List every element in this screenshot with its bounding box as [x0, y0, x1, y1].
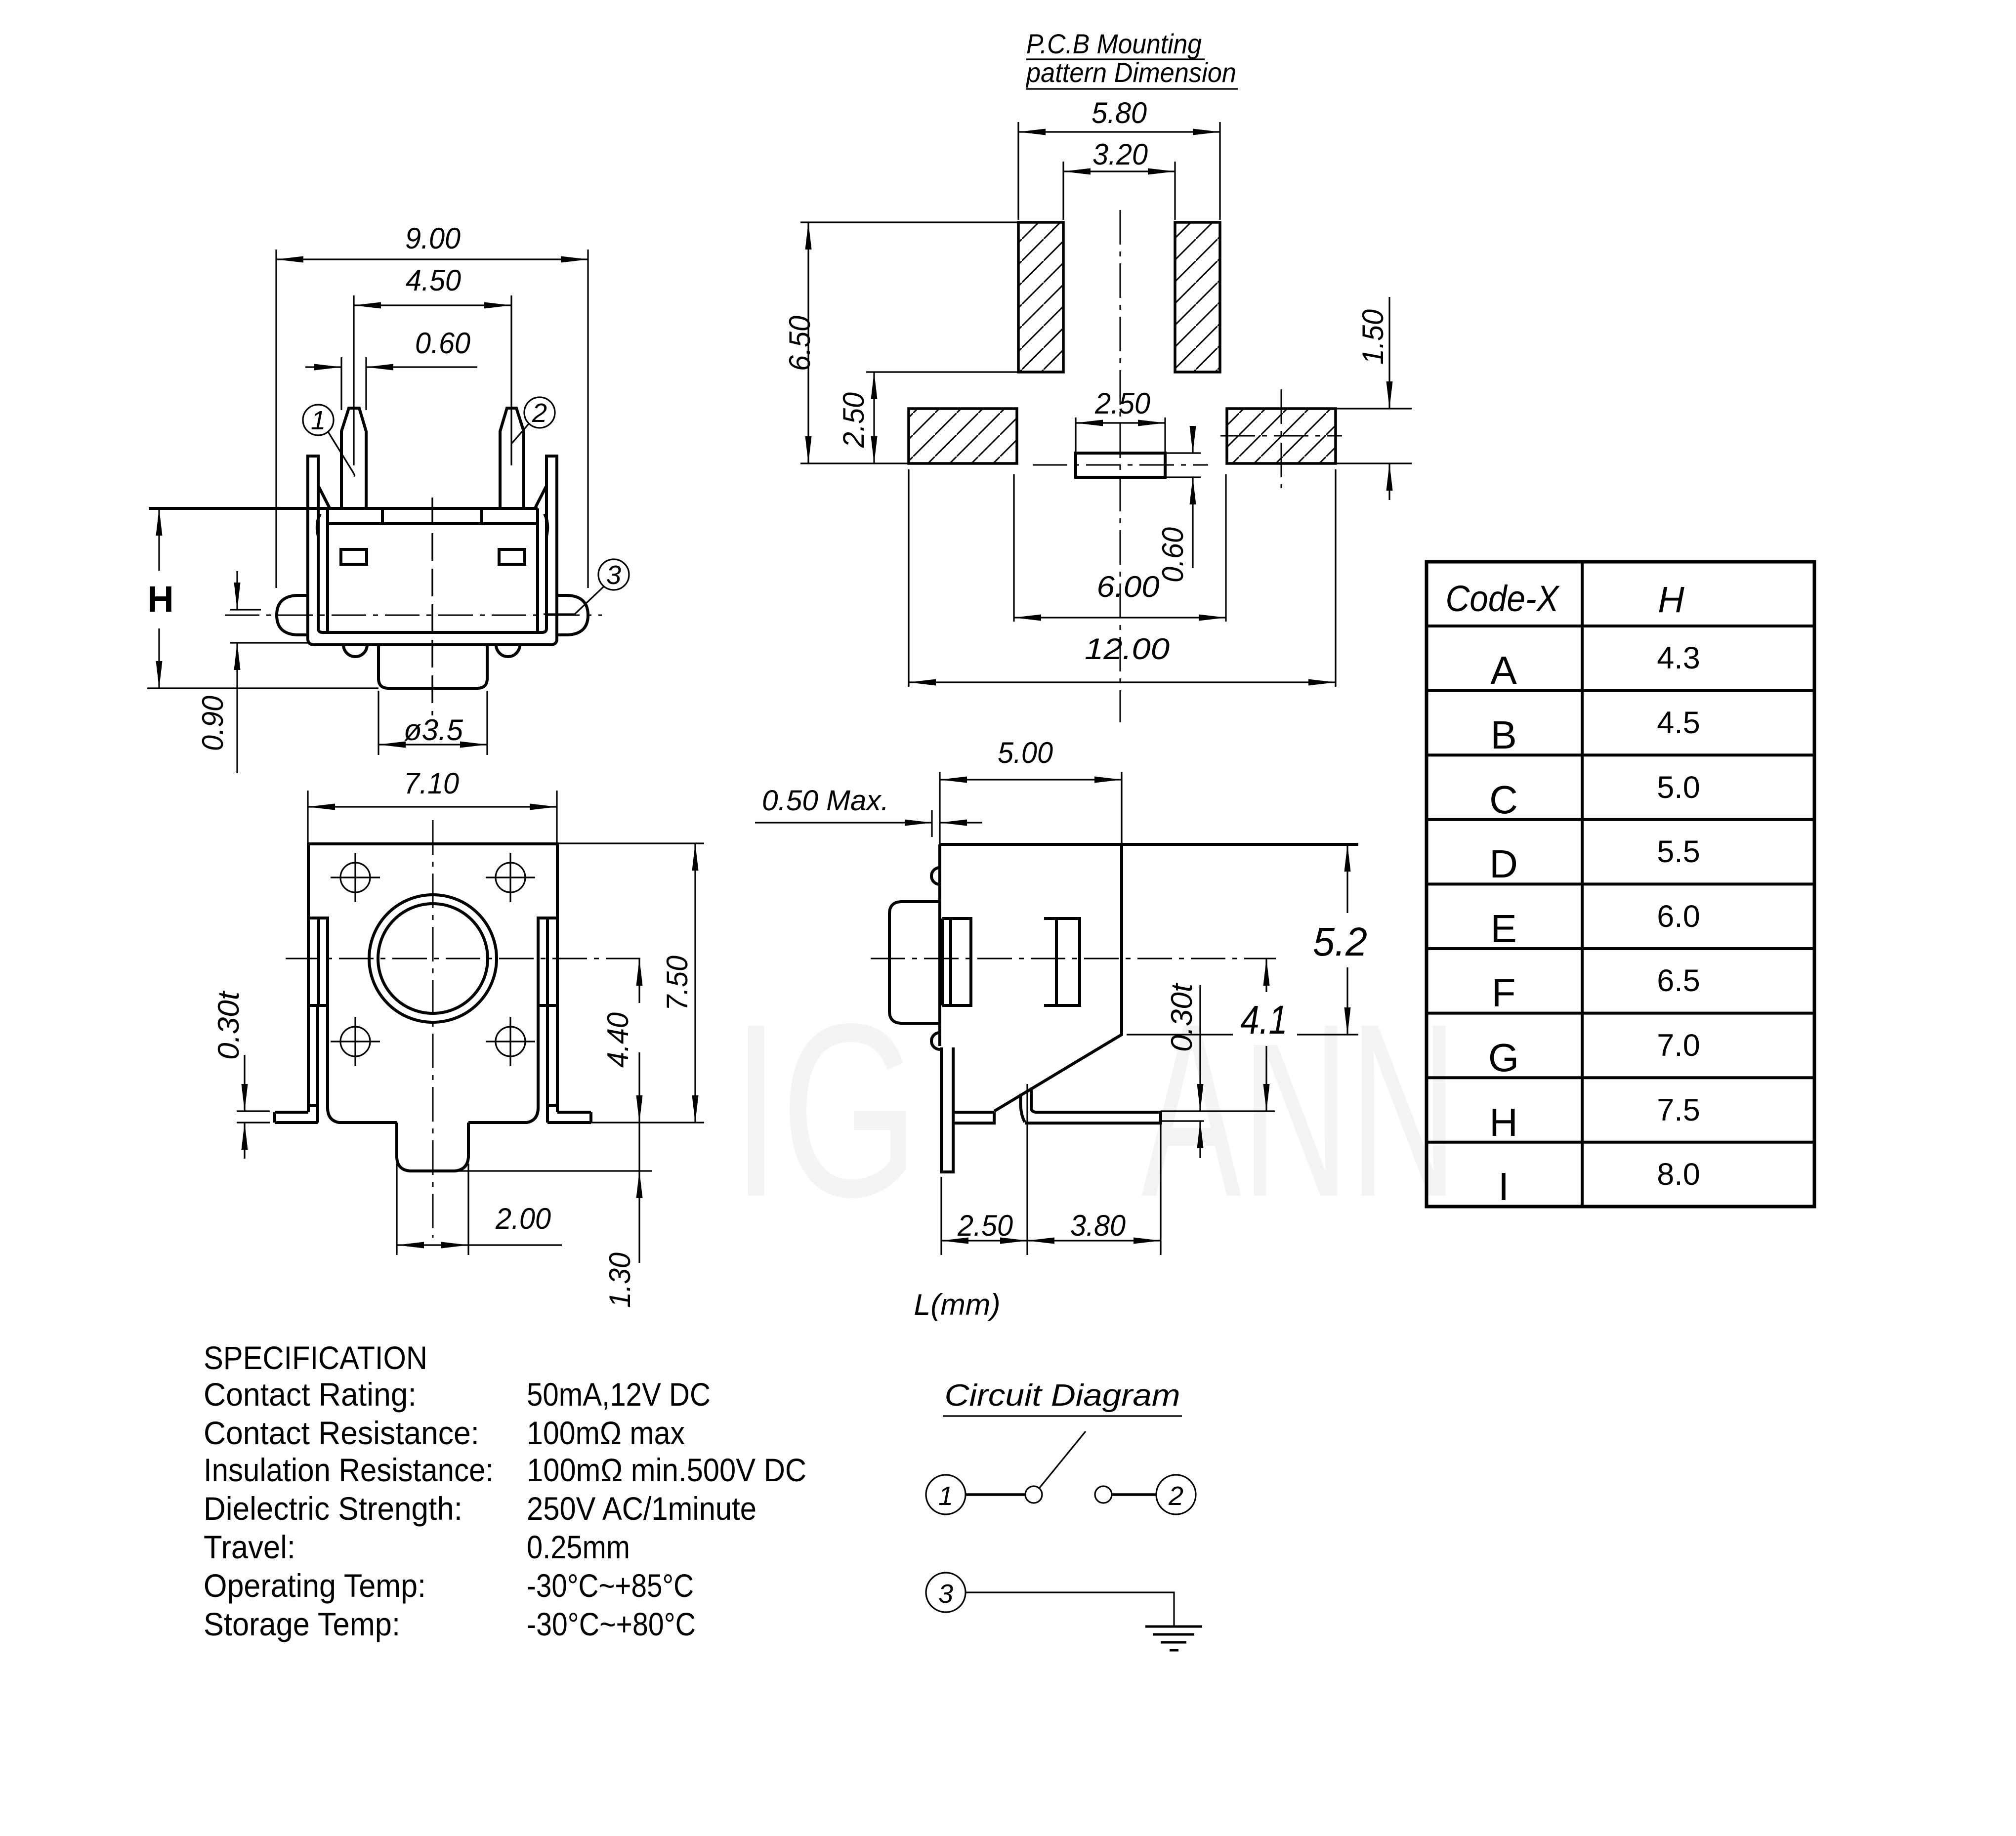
svg-text:2.00: 2.00	[495, 1202, 551, 1235]
svg-text:G: G	[1488, 1036, 1519, 1080]
svg-text:H: H	[1658, 579, 1684, 620]
svg-text:1.30: 1.30	[603, 1252, 636, 1308]
svg-text:F: F	[1492, 971, 1516, 1015]
svg-text:P.C.B Mounting: P.C.B Mounting	[1026, 28, 1202, 59]
svg-text:4.5: 4.5	[1657, 706, 1700, 740]
svg-text:1: 1	[938, 1481, 953, 1511]
svg-text:3: 3	[606, 560, 621, 590]
svg-text:5.5: 5.5	[1657, 835, 1700, 869]
svg-text:4.40: 4.40	[601, 1012, 634, 1068]
svg-text:-30°C~+80°C: -30°C~+80°C	[527, 1606, 696, 1642]
svg-text:100mΩ min.500V DC: 100mΩ min.500V DC	[527, 1452, 806, 1488]
svg-text:E: E	[1490, 907, 1516, 951]
svg-text:12.00: 12.00	[1085, 632, 1170, 666]
svg-text:Contact Rating:: Contact Rating:	[204, 1376, 417, 1413]
svg-text:4.3: 4.3	[1657, 641, 1700, 675]
svg-text:-30°C~+85°C: -30°C~+85°C	[527, 1567, 694, 1604]
svg-text:6.50: 6.50	[783, 316, 816, 371]
svg-text:H: H	[1489, 1100, 1518, 1144]
svg-text:250V AC/1minute: 250V AC/1minute	[527, 1490, 756, 1527]
svg-text:7.50: 7.50	[661, 956, 694, 1011]
svg-text:Travel:: Travel:	[204, 1529, 295, 1565]
svg-text:8.0: 8.0	[1657, 1157, 1700, 1192]
svg-text:100mΩ max: 100mΩ max	[527, 1415, 685, 1451]
svg-text:3: 3	[938, 1579, 953, 1609]
svg-text:3.20: 3.20	[1092, 138, 1148, 171]
svg-text:Storage Temp:: Storage Temp:	[204, 1606, 400, 1642]
svg-text:Dielectric Strength:: Dielectric Strength:	[204, 1490, 462, 1527]
svg-text:SPECIFICATION: SPECIFICATION	[204, 1339, 427, 1376]
svg-text:0.60: 0.60	[415, 327, 470, 360]
svg-text:50mA,12V DC: 50mA,12V DC	[527, 1376, 711, 1413]
svg-text:0.30t: 0.30t	[1165, 983, 1198, 1052]
svg-text:2.50: 2.50	[837, 392, 870, 448]
svg-text:6.5: 6.5	[1657, 963, 1700, 998]
svg-text:H: H	[147, 579, 173, 620]
svg-text:0.60: 0.60	[1156, 527, 1189, 583]
svg-text:6.00: 6.00	[1097, 570, 1160, 603]
svg-text:B: B	[1490, 713, 1516, 757]
svg-text:Operating Temp:: Operating Temp:	[204, 1567, 426, 1604]
svg-text:6.0: 6.0	[1657, 899, 1700, 934]
svg-text:0.90: 0.90	[196, 696, 229, 751]
svg-text:5.2: 5.2	[1313, 919, 1367, 964]
svg-text:Insulation Resistance:: Insulation Resistance:	[204, 1452, 494, 1488]
svg-text:2.50: 2.50	[1094, 387, 1150, 420]
svg-text:7.5: 7.5	[1657, 1093, 1700, 1127]
svg-text:1: 1	[311, 406, 326, 435]
svg-text:0.25mm: 0.25mm	[527, 1529, 630, 1565]
svg-text:Circuit Diagram: Circuit Diagram	[945, 1378, 1180, 1413]
svg-text:4.50: 4.50	[406, 264, 461, 297]
svg-text:9.00: 9.00	[405, 222, 461, 255]
svg-text:4.1: 4.1	[1241, 998, 1288, 1043]
svg-text:Code-X: Code-X	[1446, 578, 1560, 619]
svg-text:5.80: 5.80	[1092, 96, 1147, 129]
svg-text:C: C	[1489, 778, 1518, 822]
svg-text:0.50 Max.: 0.50 Max.	[762, 785, 889, 817]
svg-text:2: 2	[532, 398, 547, 428]
svg-text:ø3.5: ø3.5	[404, 713, 463, 747]
svg-text:D: D	[1489, 842, 1518, 886]
svg-text:1.50: 1.50	[1356, 309, 1389, 365]
svg-text:A: A	[1490, 648, 1517, 692]
svg-text:pattern Dimension: pattern Dimension	[1025, 57, 1236, 88]
svg-text:7.10: 7.10	[404, 767, 459, 800]
svg-text:0.30t: 0.30t	[212, 991, 245, 1060]
svg-text:7.0: 7.0	[1657, 1028, 1700, 1063]
svg-text:3.80: 3.80	[1070, 1209, 1126, 1242]
svg-text:I: I	[1498, 1165, 1509, 1209]
svg-text:2.50: 2.50	[957, 1209, 1013, 1242]
svg-text:5.00: 5.00	[998, 736, 1053, 769]
svg-text:L(mm): L(mm)	[914, 1288, 1001, 1321]
svg-text:2: 2	[1168, 1481, 1183, 1511]
svg-text:5.0: 5.0	[1657, 770, 1700, 805]
svg-text:Contact Resistance:: Contact Resistance:	[204, 1415, 479, 1451]
